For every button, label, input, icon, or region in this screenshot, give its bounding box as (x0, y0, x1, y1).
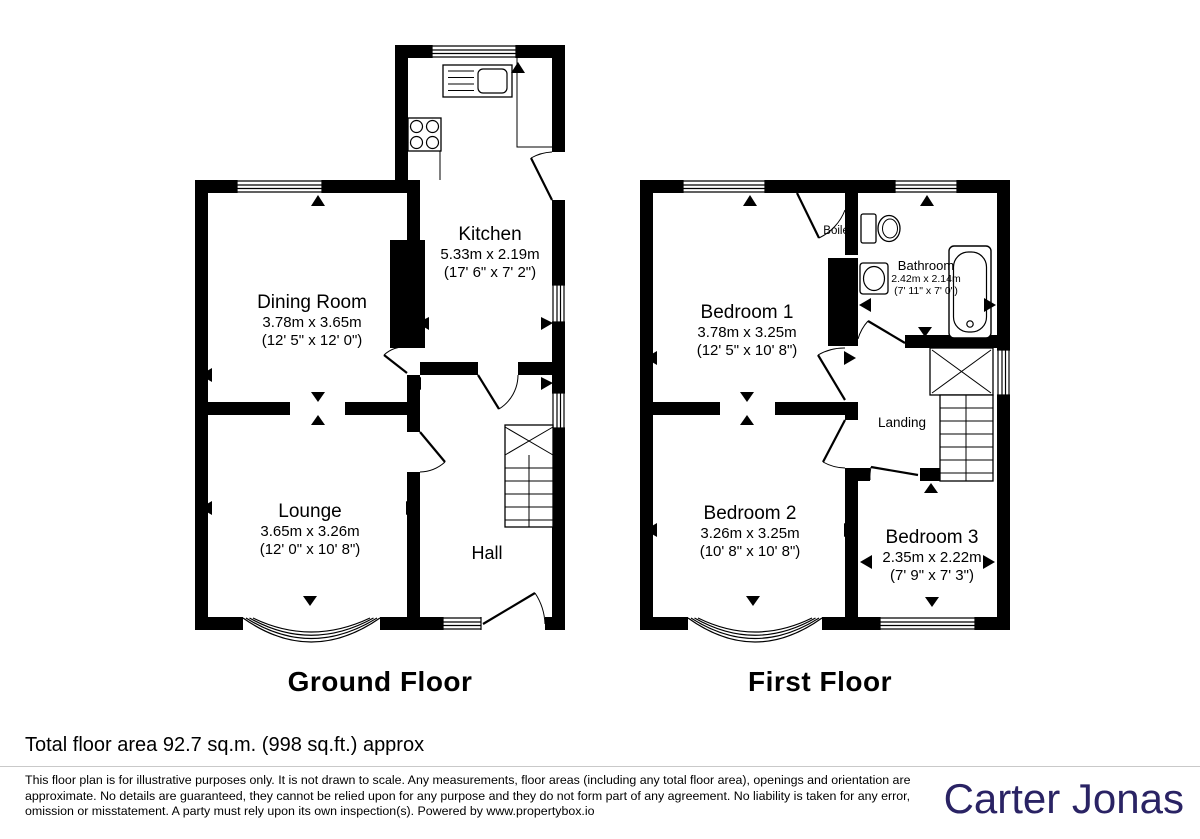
bedroom2-label: Bedroom 2 3.26m x 3.25m (10' 8" x 10' 8"… (700, 503, 801, 561)
lounge-name: Lounge (260, 501, 361, 523)
dining-room-door (384, 347, 407, 373)
boiler-label: Boiler (823, 225, 852, 239)
ground-floor-markers (200, 62, 553, 606)
bedroom1-label: Bedroom 1 3.78m x 3.25m (12' 5" x 10' 8"… (697, 302, 798, 360)
bedroom3-metric: 2.35m x 2.22m (882, 549, 981, 567)
hall-label: Hall (471, 543, 502, 564)
bathroom-metric: 2.42m x 2.14m (891, 273, 960, 285)
dining-room-name: Dining Room (257, 292, 367, 314)
bedroom3-name: Bedroom 3 (882, 527, 981, 549)
kitchen-back-door (531, 152, 552, 200)
hob-icon (408, 118, 441, 151)
bedroom2-name: Bedroom 2 (700, 503, 801, 525)
ground-floor-plan (195, 45, 565, 642)
front-door (483, 593, 545, 624)
bedroom2-bay-window (688, 618, 822, 642)
bedroom3-door (870, 467, 918, 480)
lounge-label: Lounge 3.65m x 3.26m (12' 0" x 10' 8") (260, 501, 361, 559)
hall-front-window (443, 617, 481, 630)
bedroom3-window (880, 617, 975, 630)
dining-room-window (237, 180, 322, 193)
kitchen-imperial: (17' 6" x 7' 2") (440, 264, 539, 282)
chimney-breast-first (828, 258, 858, 346)
landing-label: Landing (878, 415, 926, 431)
dining-room-imperial: (12' 5" x 12' 0") (257, 332, 367, 350)
bedroom1-door (818, 348, 845, 400)
ground-floor-title: Ground Floor (288, 666, 473, 698)
chimney-breast (390, 240, 425, 348)
kitchen-hall-door (478, 375, 518, 409)
lounge-door (420, 432, 445, 472)
bathroom-label: Bathroom 2.42m x 2.14m (7' 11" x 7' 0") (891, 258, 960, 297)
kitchen-window (432, 45, 516, 58)
basin-icon (860, 263, 888, 294)
ground-floor-walls (195, 45, 565, 630)
lounge-bay-window (243, 618, 380, 642)
first-floor-stairs (930, 348, 993, 481)
bedroom1-metric: 3.78m x 3.25m (697, 324, 798, 342)
kitchen-sink-icon (443, 65, 512, 97)
total-floor-area: Total floor area 92.7 sq.m. (998 sq.ft.)… (25, 734, 424, 757)
disclaimer-text: This floor plan is for illustrative purp… (25, 773, 943, 820)
toilet-icon (861, 214, 900, 243)
bathroom-name: Bathroom (891, 258, 960, 273)
footer-divider (0, 766, 1200, 767)
bedroom1-imperial: (12' 5" x 10' 8") (697, 342, 798, 360)
bathroom-window (895, 180, 957, 193)
bedroom2-imperial: (10' 8" x 10' 8") (700, 543, 801, 561)
first-floor-title: First Floor (748, 666, 892, 698)
bedroom2-metric: 3.26m x 3.25m (700, 525, 801, 543)
landing-side-window (997, 350, 1010, 395)
bedroom1-name: Bedroom 1 (697, 302, 798, 324)
bathroom-imperial: (7' 11" x 7' 0") (891, 285, 960, 297)
bedroom2-door (823, 420, 845, 468)
kitchen-metric: 5.33m x 2.19m (440, 246, 539, 264)
dining-room-metric: 3.78m x 3.65m (257, 314, 367, 332)
hall-side-window (552, 393, 565, 428)
ground-floor-stairs (505, 425, 553, 527)
bedroom3-label: Bedroom 3 2.35m x 2.22m (7' 9" x 7' 3") (882, 527, 981, 585)
bedroom1-window (683, 180, 765, 193)
carter-jonas-logo: Carter Jonas (944, 775, 1184, 823)
lounge-imperial: (12' 0" x 10' 8") (260, 541, 361, 559)
floorplan-drawing (0, 0, 1200, 730)
kitchen-label: Kitchen 5.33m x 2.19m (17' 6" x 7' 2") (440, 224, 539, 282)
dining-room-label: Dining Room 3.78m x 3.65m (12' 5" x 12' … (257, 292, 367, 350)
bathroom-door (858, 321, 905, 343)
kitchen-side-window (552, 285, 565, 322)
bedroom3-imperial: (7' 9" x 7' 3") (882, 567, 981, 585)
kitchen-name: Kitchen (440, 224, 539, 246)
lounge-metric: 3.65m x 3.26m (260, 523, 361, 541)
floorplan-page: Kitchen 5.33m x 2.19m (17' 6" x 7' 2") D… (0, 0, 1200, 839)
